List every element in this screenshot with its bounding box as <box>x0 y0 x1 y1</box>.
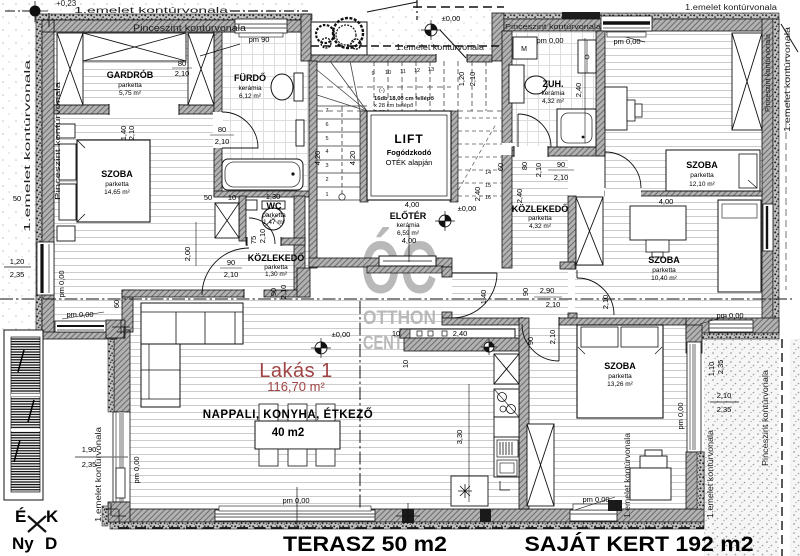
svg-text:116,70 m²: 116,70 m² <box>267 379 325 394</box>
svg-text:1,30 m²: 1,30 m² <box>265 271 288 278</box>
svg-text:TERASZ 50 m2: TERASZ 50 m2 <box>283 533 447 556</box>
svg-text:pm 0,00: pm 0,00 <box>716 311 743 320</box>
svg-text:kerámia: kerámia <box>541 90 565 97</box>
svg-text:1.emelet kontúrvonala: 1.emelet kontúrvonala <box>685 3 778 12</box>
svg-text:4: 4 <box>325 149 328 155</box>
svg-text:pm 0,00: pm 0,00 <box>282 496 309 505</box>
svg-text:ZUH.: ZUH. <box>543 79 564 89</box>
svg-text:14: 14 <box>485 170 491 176</box>
svg-text:16: 16 <box>485 195 491 201</box>
svg-text:50: 50 <box>204 193 212 202</box>
svg-text:(-): (-) <box>379 88 385 94</box>
svg-text:parketta: parketta <box>118 82 142 89</box>
svg-text:Pinceszint kontúrvonala: Pinceszint kontúrvonala <box>505 22 602 31</box>
svg-text:parketta: parketta <box>528 215 552 222</box>
svg-text:1.emelet kontúrvonala: 1.emelet kontúrvonala <box>396 43 485 52</box>
svg-text:M: M <box>521 46 527 53</box>
svg-text:2,10: 2,10 <box>279 285 288 300</box>
svg-text:2: 2 <box>325 177 328 183</box>
svg-text:Pinceszint kontúrvonala: Pinceszint kontúrvonala <box>133 23 246 33</box>
svg-text:90: 90 <box>526 337 535 345</box>
svg-text:2,10: 2,10 <box>224 270 239 279</box>
svg-text:Pinceszint kontúrvonala: Pinceszint kontúrvonala <box>761 369 770 466</box>
svg-text:É: É <box>15 507 26 526</box>
svg-text:2,10: 2,10 <box>127 126 136 141</box>
svg-text:x 28 cm belépő: x 28 cm belépő <box>374 103 413 109</box>
svg-text:D: D <box>45 534 57 553</box>
svg-text:10: 10 <box>401 360 410 368</box>
svg-text:GARDRÓB: GARDRÓB <box>107 69 154 80</box>
svg-text:1.emelet kontúrvonala: 1.emelet kontúrvonala <box>706 429 715 518</box>
svg-text:7: 7 <box>325 108 328 114</box>
svg-text:90: 90 <box>269 288 278 296</box>
svg-text:15: 15 <box>485 183 491 189</box>
svg-text:FÜRDŐ: FÜRDŐ <box>234 72 266 83</box>
svg-text:1,10: 1,10 <box>707 362 716 377</box>
svg-text:2,10: 2,10 <box>215 137 230 146</box>
svg-text:Pinceszint kontúrvonala: Pinceszint kontúrvonala <box>763 33 772 112</box>
svg-text:2,10: 2,10 <box>717 391 732 400</box>
svg-text:parketta: parketta <box>264 264 288 271</box>
svg-text:1.emelet kontúrvonala: 1.emelet kontúrvonala <box>783 26 792 132</box>
svg-text:SZOBA: SZOBA <box>101 169 133 179</box>
svg-text:12,10 m²: 12,10 m² <box>689 181 715 188</box>
svg-text:10: 10 <box>228 193 236 202</box>
svg-text:parketta: parketta <box>652 267 676 274</box>
svg-text:1,20: 1,20 <box>10 257 25 266</box>
svg-text:4,32 m²: 4,32 m² <box>542 98 565 105</box>
svg-text:2,10: 2,10 <box>546 300 561 309</box>
svg-text:14,65 m²: 14,65 m² <box>104 189 130 196</box>
svg-text:pm 0,00: pm 0,00 <box>582 495 609 504</box>
svg-text:60: 60 <box>112 300 121 308</box>
svg-text:KÖZLEKEDŐ: KÖZLEKEDŐ <box>512 203 569 214</box>
svg-text:80: 80 <box>178 59 186 68</box>
svg-text:WC: WC <box>267 201 282 211</box>
svg-text:KÖZLEKEDŐ: KÖZLEKEDŐ <box>248 252 305 263</box>
svg-text:13,26 m²: 13,26 m² <box>607 381 633 388</box>
svg-text:1.emelet kontúrvonala: 1.emelet kontúrvonala <box>74 6 229 15</box>
svg-text:1.emelet kontúrvonala: 1.emelet kontúrvonala <box>623 432 632 518</box>
svg-text:2,10: 2,10 <box>548 330 557 345</box>
svg-text:5,75 m²: 5,75 m² <box>119 90 142 97</box>
svg-text:3,30: 3,30 <box>455 430 464 445</box>
svg-text:2,35: 2,35 <box>716 360 725 375</box>
svg-text:2,40: 2,40 <box>574 83 583 98</box>
svg-text:90: 90 <box>227 258 235 267</box>
svg-text:90: 90 <box>521 288 530 296</box>
svg-text:NAPPALI, KONYHA, ÉTKEZŐ: NAPPALI, KONYHA, ÉTKEZŐ <box>203 408 373 421</box>
svg-text:4,20: 4,20 <box>348 151 357 166</box>
svg-text:3: 3 <box>325 163 328 169</box>
svg-text:2,40: 2,40 <box>453 329 468 338</box>
svg-text:10,40 m²: 10,40 m² <box>651 275 677 282</box>
svg-text:SZOBA: SZOBA <box>686 160 718 170</box>
svg-text:pm 0,00: pm 0,00 <box>57 270 66 297</box>
svg-text:pm 0,00: pm 0,00 <box>613 37 640 46</box>
svg-text:K: K <box>46 507 59 526</box>
svg-text:2,35: 2,35 <box>717 405 732 414</box>
svg-text:1,30: 1,30 <box>266 192 281 201</box>
svg-text:OTTHON: OTTHON <box>363 307 436 329</box>
svg-text:Pinceszint kontúrvonala: Pinceszint kontúrvonala <box>55 82 62 200</box>
svg-text:±0,00: ±0,00 <box>458 204 477 213</box>
svg-text:2,40: 2,40 <box>515 189 524 204</box>
svg-text:SZOBA: SZOBA <box>648 255 680 265</box>
svg-text:50: 50 <box>13 194 21 203</box>
svg-text:40 m2: 40 m2 <box>272 427 305 439</box>
svg-text:+0,23: +0,23 <box>56 0 77 8</box>
svg-text:75: 75 <box>249 236 258 244</box>
svg-text:pm 0,00: pm 0,00 <box>676 402 685 429</box>
svg-text:12: 12 <box>414 68 420 74</box>
svg-text:1,20: 1,20 <box>457 72 466 87</box>
svg-text:1: 1 <box>325 192 328 198</box>
svg-text:pm 0,00: pm 0,00 <box>536 36 563 45</box>
svg-text:1,47 m²: 1,47 m² <box>263 219 286 226</box>
svg-text:parketta: parketta <box>262 212 286 219</box>
svg-text:5: 5 <box>325 136 328 142</box>
svg-text:2,10: 2,10 <box>258 229 267 244</box>
svg-text:60: 60 <box>496 163 505 171</box>
svg-text:2,10: 2,10 <box>175 69 190 78</box>
svg-text:Ny: Ny <box>12 534 34 553</box>
svg-text:±0,00: ±0,00 <box>332 330 351 339</box>
svg-text:4,00: 4,00 <box>659 197 674 206</box>
svg-text:ELŐTÉR: ELŐTÉR <box>390 210 427 221</box>
svg-text:4,20: 4,20 <box>313 151 322 166</box>
svg-text:2,10: 2,10 <box>534 163 543 178</box>
svg-text:parketta: parketta <box>105 181 129 188</box>
svg-text:LIFT: LIFT <box>394 132 423 146</box>
svg-text:2,40: 2,40 <box>473 187 482 202</box>
svg-text:2,10: 2,10 <box>601 295 610 310</box>
svg-text:2,35: 2,35 <box>10 270 25 279</box>
svg-text:6: 6 <box>325 122 328 128</box>
svg-text:pm 0,00: pm 0,00 <box>132 456 141 483</box>
svg-text:2,00: 2,00 <box>183 247 192 262</box>
svg-text:4,32 m²: 4,32 m² <box>529 223 552 230</box>
svg-text:13: 13 <box>428 67 434 73</box>
svg-text:2,10: 2,10 <box>554 173 569 182</box>
svg-text:OTÉK alapján: OTÉK alapján <box>386 158 433 167</box>
svg-text:parketta: parketta <box>690 172 714 179</box>
svg-text:SZOBA: SZOBA <box>604 361 636 371</box>
svg-text:1,40: 1,40 <box>479 290 488 305</box>
svg-text:parketta: parketta <box>608 373 632 380</box>
svg-text:Fogódzkodó: Fogódzkodó <box>387 148 432 157</box>
svg-text:80: 80 <box>520 162 529 170</box>
svg-text:pm 90: pm 90 <box>249 35 270 44</box>
svg-text:1,90: 1,90 <box>82 445 97 454</box>
svg-text:SAJÁT KERT 192 m2: SAJÁT KERT 192 m2 <box>525 533 754 556</box>
svg-text:9: 9 <box>371 71 374 77</box>
svg-text:10: 10 <box>385 70 391 76</box>
svg-text:4,00: 4,00 <box>405 200 420 209</box>
svg-text:2,35: 2,35 <box>82 460 97 469</box>
svg-text:kerámia: kerámia <box>238 85 262 92</box>
svg-text:kerámia: kerámia <box>396 222 420 229</box>
svg-text:11: 11 <box>400 69 406 75</box>
svg-text:±0,00: ±0,00 <box>442 14 461 23</box>
svg-text:80: 80 <box>218 125 226 134</box>
svg-text:2,10: 2,10 <box>468 72 477 87</box>
svg-text:6,12 m²: 6,12 m² <box>239 93 262 100</box>
svg-text:10: 10 <box>392 329 400 338</box>
svg-text:1.emelet kontúrvonala: 1.emelet kontúrvonala <box>94 426 103 522</box>
svg-text:1.emelet kontúrvonala: 1.emelet kontúrvonala <box>23 59 32 232</box>
svg-text:2,90: 2,90 <box>540 286 555 295</box>
svg-text:90: 90 <box>557 160 565 169</box>
svg-text:16db 18,00 cm fellépő: 16db 18,00 cm fellépő <box>374 96 434 102</box>
